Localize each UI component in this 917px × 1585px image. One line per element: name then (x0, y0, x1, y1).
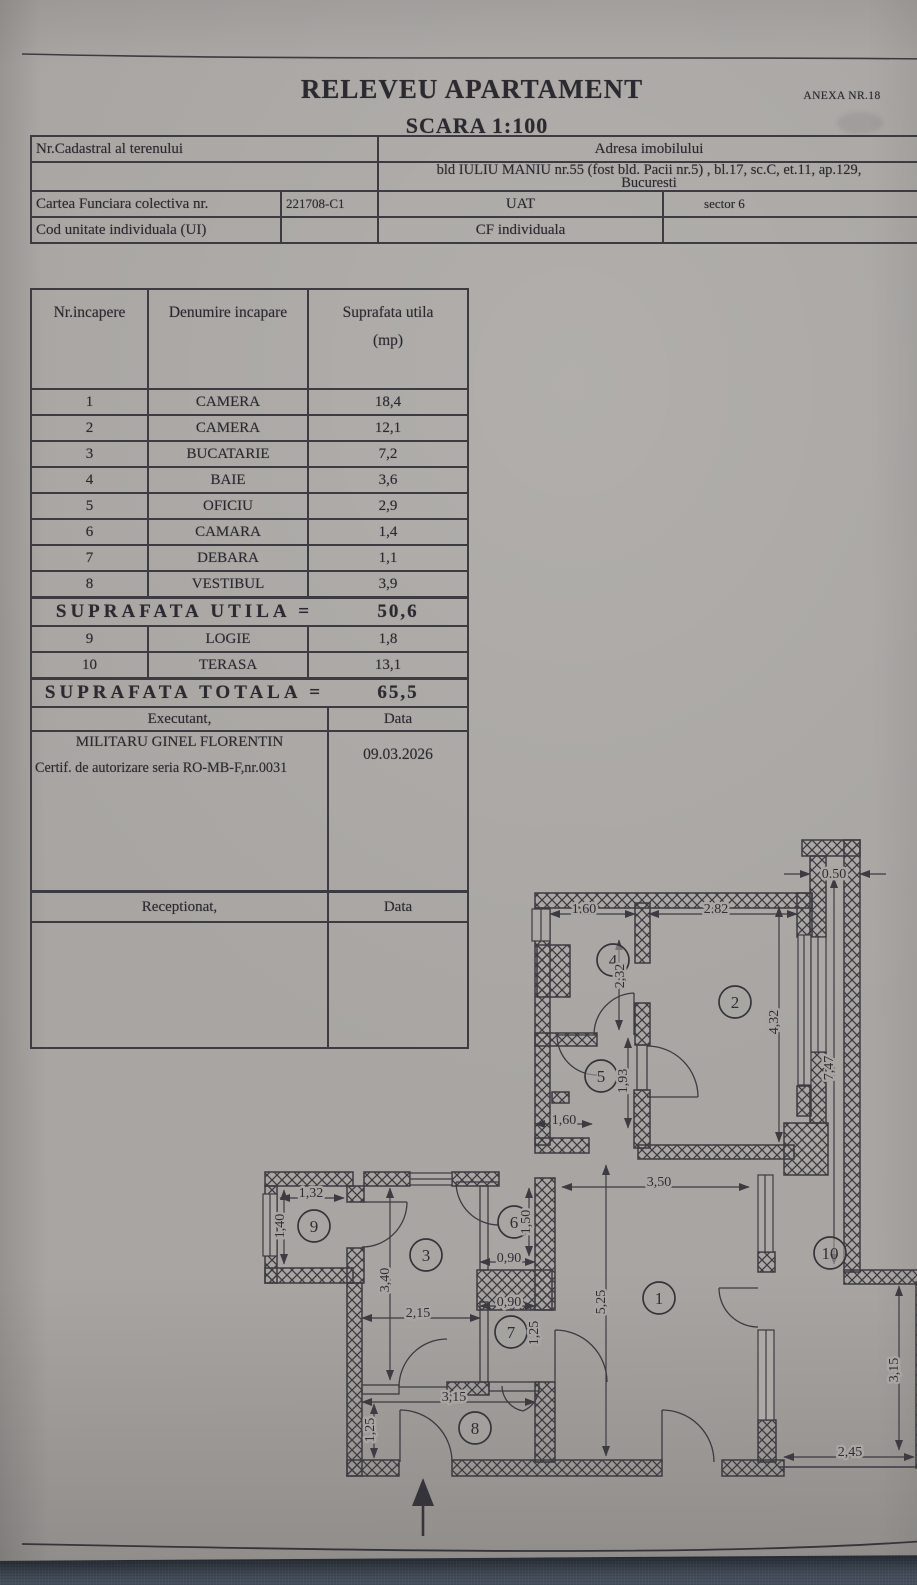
door-icon (362, 1202, 407, 1247)
suprafata-totala-row: SUPRAFATA TOTALA = 65,5 (31, 679, 468, 708)
dimension-label: 1,40 (273, 1214, 288, 1239)
anexa-label: ANEXA NR.18 (767, 90, 917, 102)
col-header-denumire: Denumire incapare (148, 289, 308, 389)
nr-cadastral-value (31, 162, 378, 191)
door-icon (719, 1288, 758, 1327)
executant-label: Executant, (31, 707, 328, 731)
table-row: 4BAIE3,6 (31, 467, 468, 493)
door-icon (456, 1182, 499, 1225)
suprafata-utila-value: 50,6 (333, 601, 463, 623)
entry-arrow-icon (412, 1478, 434, 1536)
cf-individuala-value (663, 217, 917, 243)
room-number: 3 (422, 1246, 431, 1265)
table-row: 8VESTIBUL3,9 (31, 571, 468, 598)
table-row: 6CAMARA1,4 (31, 519, 468, 545)
dimension-label: 1,25 (527, 1321, 542, 1346)
dimension-label: 3,40 (378, 1268, 393, 1293)
cf-individuala-label: CF individuala (378, 217, 663, 243)
room-number: 2 (731, 993, 740, 1012)
dimension-label: 4,32 (767, 1010, 782, 1035)
adresa-value: bld IULIU MANIU nr.55 (fost bld. Pacii n… (378, 162, 917, 191)
dimension-label: 0,90 (497, 1251, 522, 1266)
dimension-label: 1,60 (552, 1113, 577, 1128)
table-row: 9LOGIE1,8 (31, 626, 468, 652)
dimension-label: 1.60 (572, 902, 597, 917)
suprafata-utila-row: SUPRAFATA UTILA = 50,6 (31, 598, 468, 627)
suprafata-totala-value: 65,5 (333, 682, 463, 704)
table-row: 5OFICIU2,9 (31, 493, 468, 519)
suprafata-utila-label: SUPRAFATA UTILA = (36, 601, 333, 623)
executant-name: MILITARU GINEL FLORENTIN (36, 734, 323, 751)
folding-door-icon (502, 1386, 539, 1411)
table-row: 1CAMERA18,4 (31, 389, 468, 415)
table-row: 7DEBARA1,1 (31, 545, 468, 571)
uat-label: UAT (378, 191, 663, 217)
dimension-label: 1,93 (616, 1069, 631, 1094)
door-icon (662, 1410, 714, 1462)
dimension-label: 1,25 (363, 1418, 378, 1443)
dimension-label: 2,45 (838, 1445, 863, 1460)
ink-smudge (837, 112, 883, 134)
suprafata-totala-label: SUPRAFATA TOTALA = (36, 682, 333, 704)
door-icon (399, 1339, 447, 1387)
dimension-label: 1,50 (519, 1210, 534, 1235)
photo-of-document: RELEVEU APARTAMENT SCARA 1:100 ANEXA NR.… (0, 0, 917, 1585)
cf-colectiva-value: 221708-C1 (281, 191, 378, 217)
window-icon (758, 1175, 773, 1252)
cod-ui-label: Cod unitate individuala (UI) (31, 217, 281, 243)
uat-value: sector 6 (663, 191, 917, 217)
door-icon (400, 1410, 452, 1462)
room-number: 9 (310, 1217, 319, 1236)
room-number: 5 (597, 1067, 606, 1086)
dimension-label: 5,25 (594, 1290, 609, 1315)
window-icon (811, 937, 826, 1052)
window-icon (758, 1330, 774, 1420)
dimension-label: 1,32 (299, 1186, 324, 1201)
dimension-label: 7,47 (822, 1056, 837, 1081)
dimension-label: 2,15 (406, 1306, 431, 1321)
dimension-label: 3,50 (647, 1175, 672, 1190)
col-header-suprafata: Suprafata utila (mp) (308, 289, 468, 389)
window-icon (532, 909, 550, 941)
cf-colectiva-label: Cartea Funciara colectiva nr. (31, 191, 281, 217)
dimension-label: 2,32 (613, 964, 628, 989)
door-icon (555, 1330, 607, 1382)
table-row: 3BUCATARIE7,2 (31, 441, 468, 467)
info-table: Nr.Cadastral al terenului Adresa imobilu… (30, 135, 917, 244)
dimension-label: 3,15 (442, 1390, 467, 1405)
col-header-nr: Nr.incapere (31, 289, 148, 389)
room-number: 10 (822, 1244, 839, 1263)
dimension-label: 2.82 (704, 902, 729, 917)
table-row: 2CAMERA12,1 (31, 415, 468, 441)
executant-cert: Certif. de autorizare seria RO-MB-F,nr.0… (35, 760, 323, 777)
dimension-label: 0.50 (822, 867, 847, 882)
room-number: 7 (507, 1323, 516, 1342)
window-icon (798, 935, 811, 1085)
adresa-label: Adresa imobilului (378, 136, 917, 162)
door-arcs (362, 993, 758, 1462)
walls-hatched (265, 840, 917, 1476)
door-icon (594, 993, 634, 1035)
floor-plan: 123456789101.602.822,324,320.507,471,931… (257, 812, 917, 1552)
data-label: Data (328, 707, 468, 731)
room-number: 1 (655, 1289, 664, 1308)
nr-cadastral-label: Nr.Cadastral al terenului (31, 136, 378, 162)
dimension-label: 3,15 (887, 1358, 902, 1383)
table-row: 10TERASA13,1 (31, 652, 468, 679)
room-number: 6 (510, 1213, 519, 1232)
dimension-label: 0,90 (497, 1295, 522, 1310)
window-icon (410, 1173, 452, 1185)
door-icon (647, 1046, 698, 1097)
executant-date: 09.03.2026 (333, 732, 463, 764)
room-number: 8 (471, 1419, 480, 1438)
cod-ui-value (281, 217, 378, 243)
